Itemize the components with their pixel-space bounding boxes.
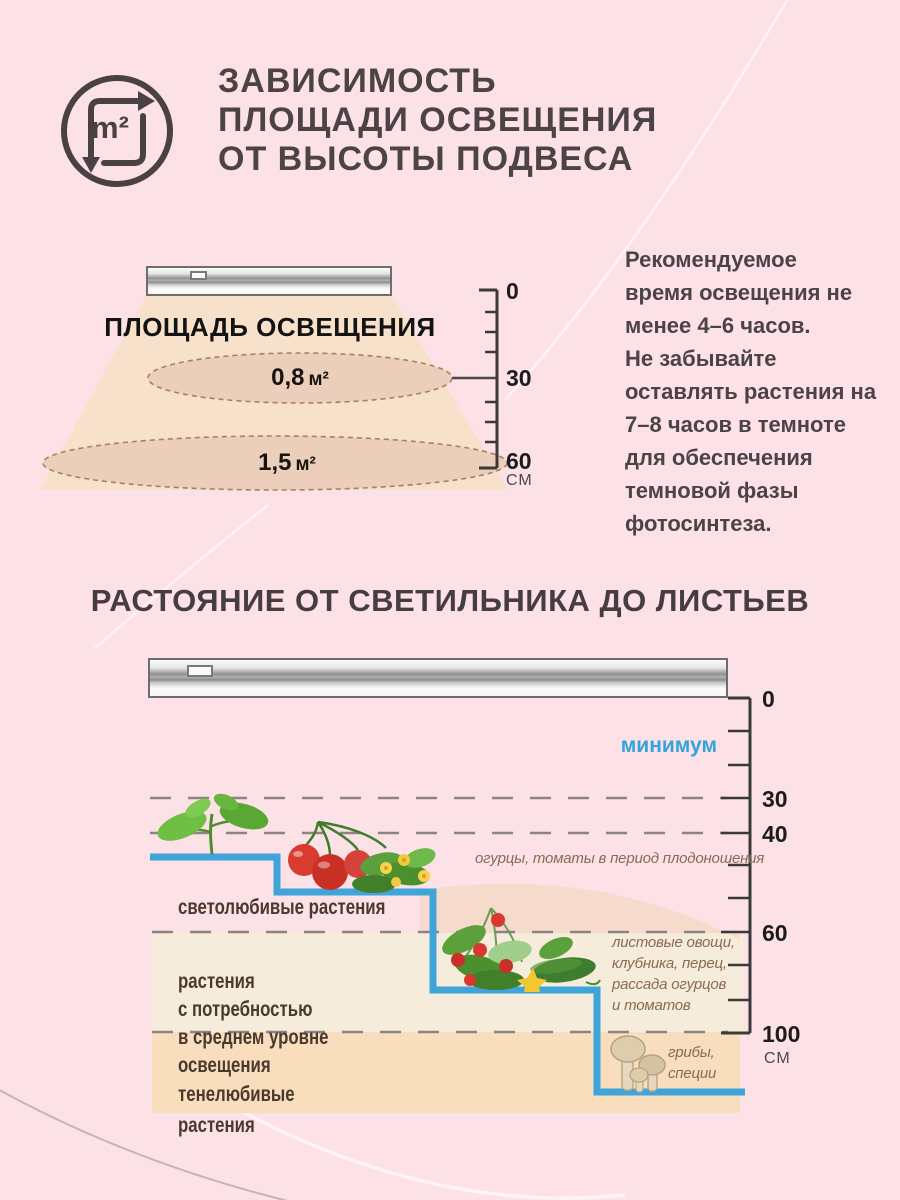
ruler2-label-60: 60 — [762, 920, 788, 947]
minimum-label: минимум — [540, 734, 717, 758]
m2-icon-label: m² — [78, 110, 142, 146]
strawberry-cucumber-illustration — [436, 902, 601, 992]
group-label-light-loving: светолюбивые растения — [178, 894, 437, 922]
ruler1-unit: СМ — [506, 472, 533, 490]
ruler2-label-0: 0 — [762, 686, 775, 713]
cone-title: ПЛОЩАДЬ ОСВЕЩЕНИЯ — [70, 312, 470, 343]
ruler1-label-0: 0 — [506, 278, 519, 305]
ruler1-label-30: 30 — [506, 365, 532, 392]
ruler2-label-40: 40 — [762, 821, 788, 848]
lamp-switch-2 — [187, 665, 213, 677]
lighting-time-note: Рекомендуемое время освещения не менее 4… — [625, 243, 895, 540]
plants-note-mushrooms: грибы, специи — [668, 1042, 716, 1084]
ruler2-label-100: 100 — [762, 1021, 800, 1048]
seedling-illustration — [152, 788, 272, 856]
ruler2-label-30: 30 — [762, 786, 788, 813]
group-label-shade-loving: тенелюбивые растения — [178, 1048, 324, 1141]
ruler2-unit: СМ — [764, 1050, 791, 1068]
area-value-large: 1,5м² — [137, 449, 437, 477]
m2-area-icon: m² — [58, 70, 176, 192]
infographic-page: m² ЗАВИСИМОСТЬ ПЛОЩАДИ ОСВЕЩЕНИЯ ОТ ВЫСО… — [0, 0, 900, 1200]
section2-title: РАСТОЯНИЕ ОТ СВЕТИЛЬНИКА ДО ЛИСТЬЕВ — [45, 583, 855, 619]
ruler1-label-60: 60 — [506, 448, 532, 475]
tomato-cucumber-illustration — [278, 818, 440, 894]
plants-note-leafy: листовые овощи, клубника, перец, рассада… — [612, 932, 735, 1016]
plants-note-tomatoes: огурцы, томаты в период плодоношения — [475, 848, 764, 869]
lamp-switch-1 — [190, 271, 207, 280]
area-value-small: 0,8м² — [150, 364, 450, 392]
mushrooms-illustration — [606, 1032, 670, 1093]
grow-lamp-2 — [148, 658, 728, 698]
grow-lamp-1 — [146, 266, 392, 296]
section1-title: ЗАВИСИМОСТЬ ПЛОЩАДИ ОСВЕЩЕНИЯ ОТ ВЫСОТЫ … — [218, 62, 838, 179]
